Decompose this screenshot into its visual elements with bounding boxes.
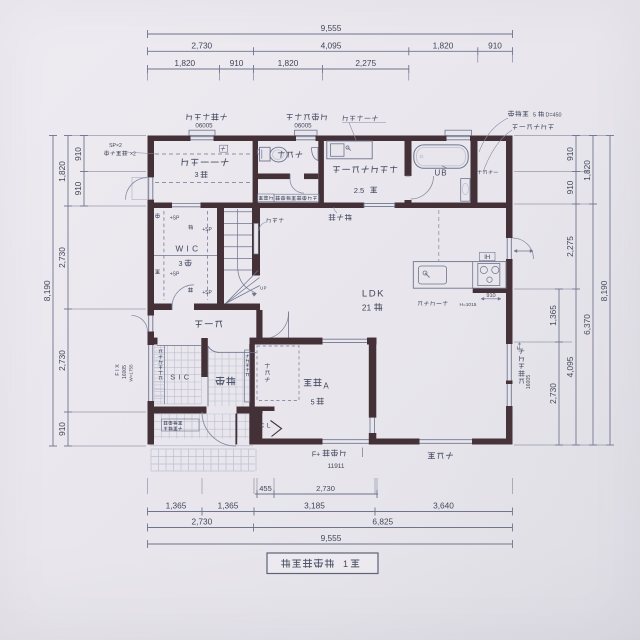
svg-text:+SP: +SP (202, 227, 212, 233)
svg-text:+SP: +SP (170, 272, 180, 278)
svg-text:LDK: LDK (362, 289, 385, 300)
svg-text:W=1755: W=1755 (129, 364, 134, 382)
svg-text:D=450: D=450 (545, 113, 561, 119)
svg-text:2,275: 2,275 (355, 58, 376, 68)
svg-text:4,095: 4,095 (321, 41, 342, 51)
svg-text:2,730: 2,730 (548, 383, 558, 404)
svg-text:2,730: 2,730 (192, 517, 213, 527)
svg-text:2,730: 2,730 (57, 247, 67, 268)
svg-text:1,820: 1,820 (57, 161, 67, 182)
svg-text:2.5: 2.5 (354, 186, 365, 195)
svg-text:8,190: 8,190 (42, 280, 52, 301)
svg-text:+SP: +SP (170, 216, 180, 222)
svg-text:2,730: 2,730 (57, 350, 67, 371)
svg-text:F I X: F I X (115, 364, 121, 376)
svg-text:910: 910 (486, 293, 495, 299)
svg-text:IH: IH (484, 255, 490, 261)
svg-text:16005: 16005 (526, 375, 532, 390)
svg-text:1: 1 (343, 559, 348, 569)
svg-text:3,640: 3,640 (433, 501, 454, 511)
svg-text:21: 21 (362, 303, 372, 313)
svg-text:910: 910 (73, 181, 83, 195)
svg-text:1,820: 1,820 (278, 58, 299, 68)
svg-text:11911: 11911 (328, 463, 345, 470)
svg-text:9,555: 9,555 (321, 23, 342, 33)
svg-text:1,365: 1,365 (218, 501, 239, 511)
svg-text:8,190: 8,190 (599, 280, 609, 301)
svg-text:1,365: 1,365 (548, 305, 558, 326)
svg-text:06005: 06005 (195, 123, 213, 130)
svg-text:2,730: 2,730 (191, 41, 212, 51)
svg-text:6,825: 6,825 (372, 517, 393, 527)
svg-text:455: 455 (259, 484, 272, 493)
svg-text:16005: 16005 (122, 365, 128, 379)
svg-text:SP×2: SP×2 (109, 143, 122, 149)
svg-text:W I C: W I C (176, 245, 199, 254)
svg-text:3,185: 3,185 (304, 501, 325, 511)
svg-text:910: 910 (230, 58, 244, 68)
svg-text:C L: C L (260, 422, 271, 429)
svg-text:H=1015: H=1015 (460, 302, 477, 308)
svg-text:910: 910 (73, 147, 83, 161)
svg-text:1,365: 1,365 (166, 501, 187, 511)
svg-text:5: 5 (310, 397, 314, 406)
svg-text:1,820: 1,820 (582, 160, 592, 181)
svg-text:5: 5 (533, 113, 536, 119)
svg-text:2,730: 2,730 (316, 484, 335, 493)
svg-text:S I C: S I C (170, 373, 189, 382)
svg-text:UB: UB (434, 168, 447, 177)
svg-text:4,095: 4,095 (565, 356, 575, 377)
svg-text:A: A (323, 382, 329, 391)
svg-text:3: 3 (179, 259, 183, 268)
svg-text:910: 910 (488, 41, 502, 51)
svg-text:910: 910 (565, 180, 575, 194)
svg-text:+SP: +SP (202, 290, 212, 296)
svg-text:3: 3 (195, 170, 199, 179)
svg-text:1,820: 1,820 (174, 58, 195, 68)
svg-text:1,820: 1,820 (433, 41, 454, 51)
svg-text:06005: 06005 (294, 123, 312, 130)
svg-text:9,555: 9,555 (321, 533, 342, 543)
svg-text:UP: UP (260, 285, 267, 290)
svg-text:2,275: 2,275 (565, 236, 575, 257)
svg-text:6,370: 6,370 (582, 314, 592, 335)
svg-text:910: 910 (57, 422, 67, 436)
svg-text:910: 910 (565, 147, 575, 161)
svg-text:F+: F+ (312, 451, 320, 458)
